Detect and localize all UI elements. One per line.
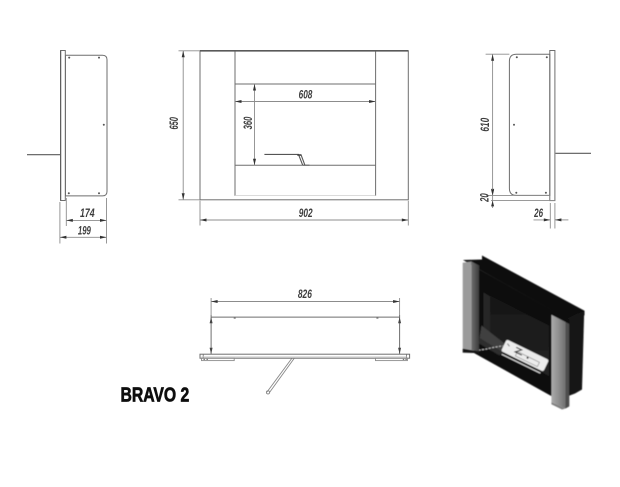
svg-text:610: 610 xyxy=(478,118,492,132)
svg-text:20: 20 xyxy=(478,193,492,202)
svg-text:902: 902 xyxy=(299,206,313,220)
svg-text:360: 360 xyxy=(241,116,255,129)
svg-text:608: 608 xyxy=(299,87,313,101)
svg-text:174: 174 xyxy=(80,206,95,220)
svg-text:26: 26 xyxy=(533,206,543,220)
svg-text:826: 826 xyxy=(298,287,312,301)
svg-text:BRAVO 2: BRAVO 2 xyxy=(121,384,190,406)
svg-text:650: 650 xyxy=(167,117,181,130)
svg-text:199: 199 xyxy=(78,223,91,237)
